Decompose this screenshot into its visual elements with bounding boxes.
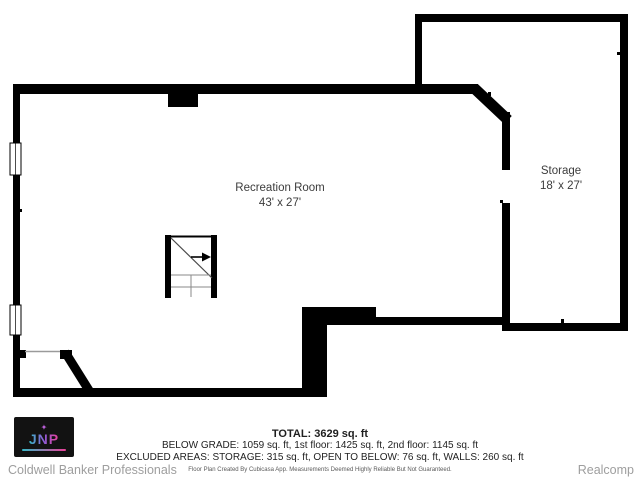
disclaimer-text: Floor Plan Created By Cubicasa App. Meas…	[116, 467, 523, 474]
window	[10, 305, 21, 335]
logo-tagline-bar	[22, 449, 66, 451]
room-label-storage: Storage 18' x 27'	[540, 164, 582, 194]
staircase	[165, 235, 217, 298]
excluded-areas-text: EXCLUDED AREAS: STORAGE: 315 sq. ft, OPE…	[116, 452, 523, 464]
window	[10, 143, 21, 175]
room-label-recreation: Recreation Room 43' x 27'	[235, 181, 324, 211]
floor-plan-page: Recreation Room 43' x 27' Storage 18' x …	[0, 0, 640, 480]
room-name: Recreation Room	[235, 181, 324, 196]
floor-areas-text: BELOW GRADE: 1059 sq. ft, 1st floor: 142…	[116, 440, 523, 452]
mls-provider-name: Realcomp	[578, 463, 634, 477]
jnp-logo: ✦ JNP	[14, 417, 74, 457]
brokerage-name: Coldwell Banker Professionals	[8, 463, 177, 477]
area-summary: TOTAL: 3629 sq. ft BELOW GRADE: 1059 sq.…	[116, 428, 523, 474]
total-area-text: TOTAL: 3629 sq. ft	[116, 428, 523, 440]
room-dimensions: 43' x 27'	[235, 196, 324, 211]
room-dimensions: 18' x 27'	[540, 179, 582, 194]
jnp-logo-text: JNP	[29, 432, 59, 447]
floor-plan-drawing	[0, 0, 640, 480]
room-name: Storage	[540, 164, 582, 179]
angled-wall-bottom-left	[65, 352, 90, 392]
